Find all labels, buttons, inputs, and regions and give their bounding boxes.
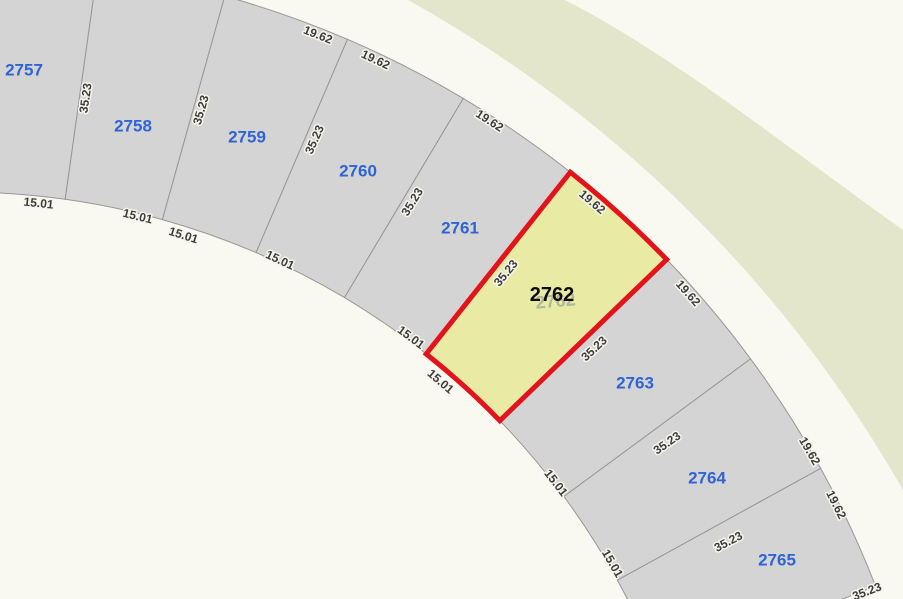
parcel-number-2765: 2765: [758, 551, 796, 570]
parcel-number-2760: 2760: [339, 162, 377, 181]
parcel-number-2761: 2761: [441, 219, 479, 238]
parcel-number-2759: 2759: [228, 128, 266, 147]
parcel-number-2757: 2757: [5, 61, 43, 80]
parcel-number-2764: 2764: [688, 469, 726, 488]
parcel-map-canvas[interactable]: 276235.2335.2335.2335.2335.2335.2335.233…: [0, 0, 903, 599]
parcel-number-2763: 2763: [616, 374, 654, 393]
selected-parcel-number: 2762: [530, 284, 575, 306]
map-viewport[interactable]: 276235.2335.2335.2335.2335.2335.2335.233…: [0, 0, 903, 599]
parcel-number-2758: 2758: [114, 117, 152, 136]
